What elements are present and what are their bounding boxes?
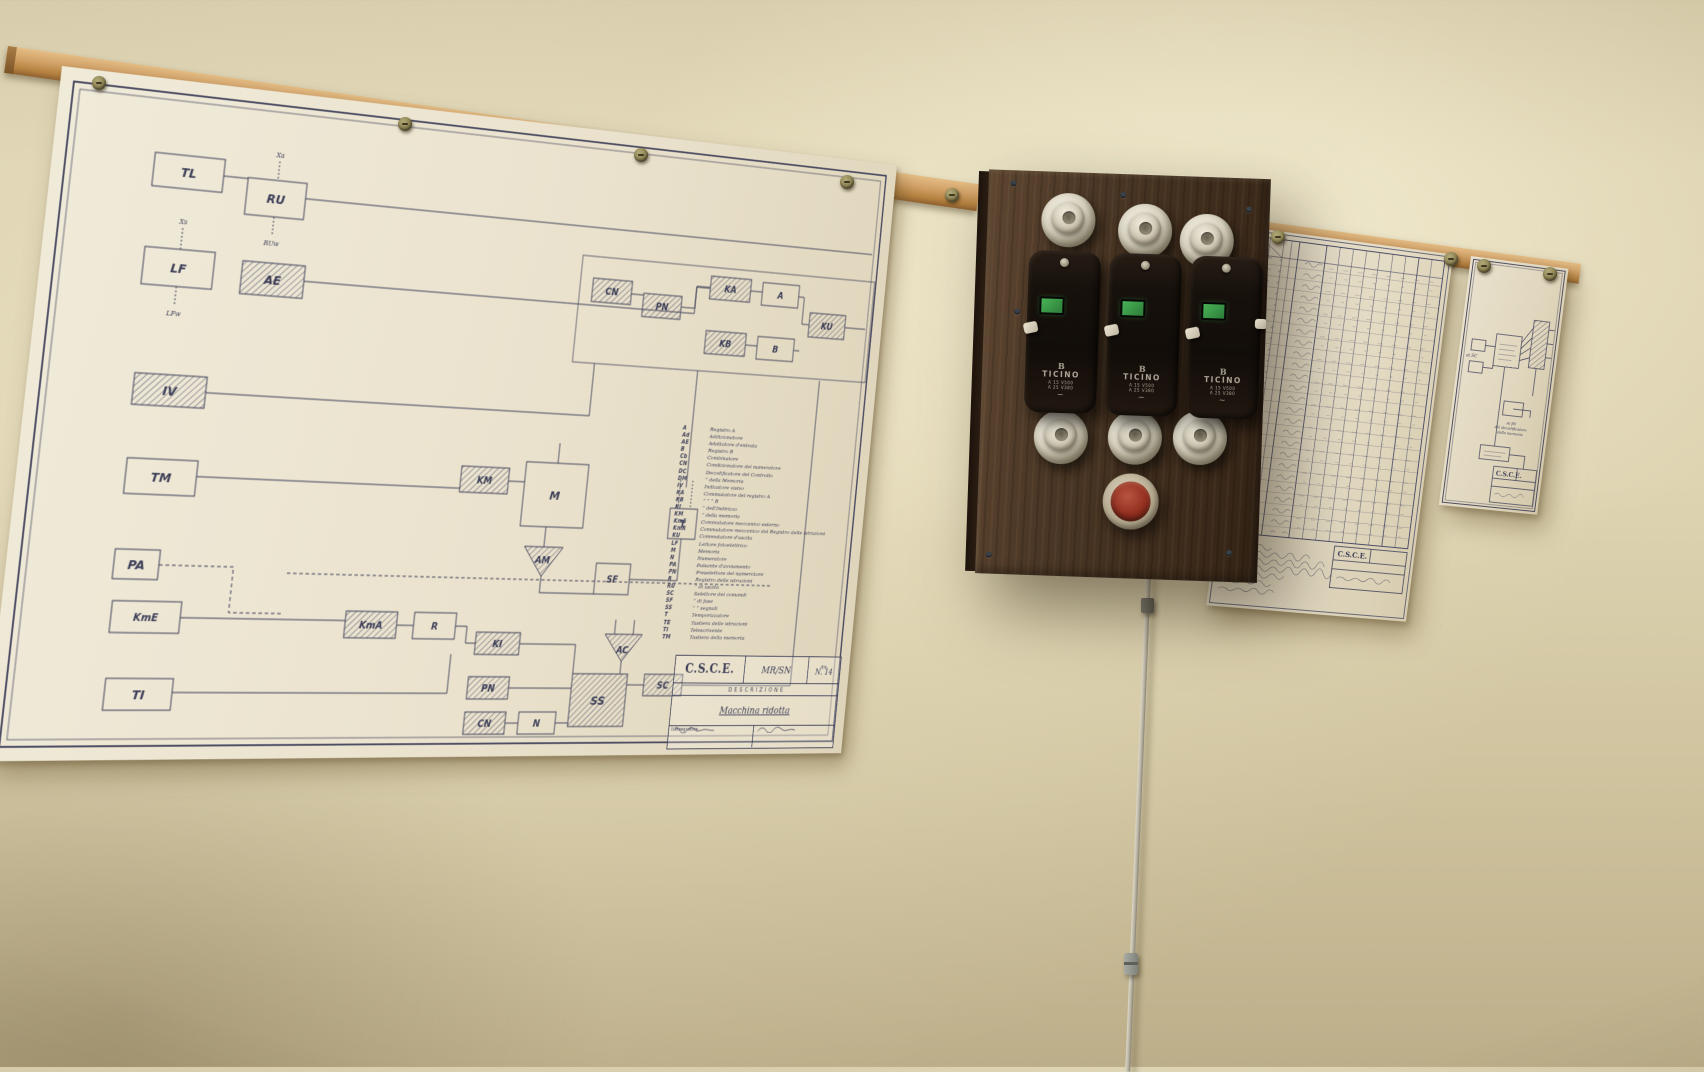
- block-label-tl: TL: [180, 166, 197, 182]
- block-label-am: AM: [534, 555, 551, 567]
- block-label-tm: TM: [150, 471, 172, 487]
- schematic-sheet-main: TL RU LF AE IV TM PA KmE TI CN PN KA A K…: [0, 66, 897, 761]
- panel-screw: [1120, 192, 1126, 198]
- port-label-ru-in: Xa: [275, 151, 285, 160]
- push-pin: [840, 175, 854, 189]
- breaker-markings: B TICINO A 15 V500 A 25 V380 ~: [1105, 364, 1178, 403]
- breaker-lever[interactable]: [1255, 319, 1267, 329]
- breaker-screw: [1060, 258, 1069, 267]
- phase-symbol: ~: [1024, 389, 1096, 401]
- block-label-ka: KA: [724, 284, 737, 296]
- org-stamp: C.S.C.E.: [674, 656, 746, 683]
- block-label-ru: RU: [266, 192, 286, 208]
- breaker-row: B TICINO A 15 V500 A 25 V380 ~ B TICINO …: [1024, 250, 1264, 420]
- push-pin: [398, 117, 412, 131]
- block-label-r: R: [430, 621, 438, 632]
- panel-screw: [1246, 206, 1252, 212]
- block-label-ku: KU: [821, 321, 834, 332]
- breaker-indicator-window: [1120, 299, 1146, 318]
- block-label-cn1: CN: [605, 286, 619, 298]
- breaker-markings: B TICINO A 15 V500 A 25 V380 ~: [1024, 361, 1097, 400]
- block-label-sf: SF: [606, 574, 619, 585]
- block-label-ss: SS: [590, 695, 606, 709]
- block-label-a: A: [776, 291, 784, 302]
- block-label-pn1: PN: [655, 301, 669, 313]
- push-pin: [1444, 252, 1458, 266]
- cable-clip: [1141, 598, 1154, 613]
- push-pin: [1543, 267, 1557, 281]
- block-label-n: N: [532, 718, 540, 729]
- block-label-lf: LF: [169, 261, 187, 277]
- breaker-lever[interactable]: [1104, 323, 1120, 337]
- panel-screw: [1011, 180, 1017, 186]
- power-cable: [1125, 574, 1151, 1072]
- org-stamp: C.S.C.E.: [1337, 549, 1368, 561]
- breaker-screw: [1141, 261, 1150, 270]
- title-block-header: C.S.C.E. MR/SN dis. N. 14: [674, 656, 841, 685]
- push-pin: [634, 148, 648, 162]
- drawing-code: MR/SN: [744, 656, 810, 683]
- drawing-number-value: N. 14: [815, 670, 833, 676]
- block-label-km: KM: [476, 475, 493, 487]
- block-label-pn2: PN: [481, 683, 496, 694]
- breaker-lever[interactable]: [1185, 326, 1201, 340]
- block-label-kb: KB: [719, 339, 732, 351]
- block-label-kma: KmA: [358, 620, 383, 632]
- push-pin: [92, 76, 106, 90]
- approver-cell: [752, 726, 835, 747]
- drawing-number: dis. N. 14: [807, 657, 841, 683]
- descrizione-label: DESCRIZIONE: [672, 683, 838, 696]
- panel-screw: [1014, 308, 1020, 314]
- push-pin: [945, 188, 959, 202]
- block-label-kme: KmE: [133, 612, 159, 624]
- schematic-sheet-small: ai SC Ai fili del decodificatore della m…: [1439, 256, 1569, 515]
- breaker-indicator-window: [1201, 302, 1227, 321]
- block-label-m: M: [549, 489, 561, 503]
- breaker-lever[interactable]: [1023, 321, 1039, 335]
- signature-scribble: [669, 726, 720, 733]
- small-block-diagram: ai SC Ai fili del decodificatore della m…: [1439, 256, 1569, 515]
- phase-symbol: ~: [1186, 394, 1258, 406]
- ticino-breaker[interactable]: B TICINO A 15 V500 A 25 V380 ~: [1105, 253, 1183, 417]
- signature-row: Il Disegnatore: [667, 726, 834, 748]
- legend: A Registro A Ad Addizionatore AE Adattat…: [662, 425, 867, 644]
- breaker-screw: [1222, 264, 1231, 273]
- push-pin: [1271, 230, 1285, 244]
- ticino-breaker[interactable]: B TICINO A 15 V500 A 25 V380 ~: [1024, 250, 1102, 414]
- port-label-ru-out: RUw: [262, 239, 279, 248]
- red-button[interactable]: [1102, 473, 1160, 531]
- signature-scribble: [753, 726, 802, 733]
- breaker-indicator-window: [1039, 296, 1065, 315]
- panel-screw: [1226, 550, 1232, 556]
- port-label-lf-in: Xs: [178, 218, 188, 227]
- block-label-sc: SC: [656, 680, 669, 691]
- drafter-cell: Il Disegnatore: [667, 726, 753, 748]
- block-label-ac: AC: [615, 645, 629, 656]
- block-label-iv: IV: [162, 384, 178, 400]
- switch-panel: B TICINO A 15 V500 A 25 V380 ~ B TICINO …: [965, 169, 1271, 583]
- legend-code: TM: [662, 634, 690, 642]
- phase-symbol: ~: [1105, 392, 1177, 404]
- rail-end-cap: [4, 46, 17, 74]
- ceramic-fuse-knob[interactable]: [1107, 410, 1163, 466]
- block-label-ti: TI: [131, 688, 146, 703]
- block-label-ae: AE: [262, 273, 282, 289]
- panel-screw: [986, 551, 992, 557]
- ticino-breaker[interactable]: B TICINO A 15 V500 A 25 V380 ~: [1186, 255, 1264, 419]
- block-label-ki: KI: [492, 639, 503, 650]
- cable-connector: [1124, 953, 1138, 975]
- title-block: C.S.C.E. MR/SN dis. N. 14 DESCRIZIONE Ma…: [666, 655, 841, 750]
- port-label-lf-out: LFw: [165, 309, 181, 318]
- ceramic-fuse-knob[interactable]: [1033, 409, 1089, 465]
- breaker-markings: B TICINO A 15 V500 A 25 V380 ~: [1186, 366, 1259, 405]
- wire-label: ai SC: [1466, 352, 1479, 358]
- push-pin: [1477, 259, 1491, 273]
- block-label-b: B: [772, 344, 779, 355]
- ceramic-fuse-knob[interactable]: [1040, 192, 1096, 248]
- block-label-cn2: CN: [477, 718, 492, 729]
- drawing-description: Macchina ridotta: [669, 696, 837, 726]
- panel-front-face: B TICINO A 15 V500 A 25 V380 ~ B TICINO …: [975, 169, 1271, 583]
- block-label-pa: PA: [127, 558, 146, 574]
